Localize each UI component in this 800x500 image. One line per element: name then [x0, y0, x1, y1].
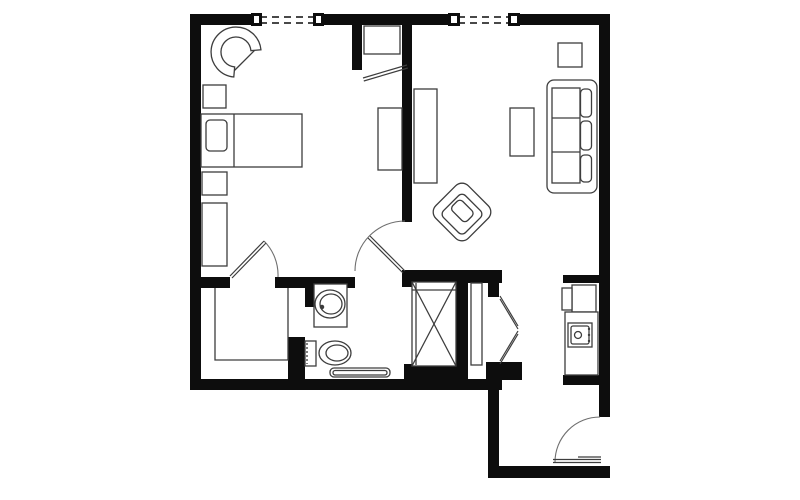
bathroom-sink	[314, 284, 347, 327]
fridge-body	[572, 285, 596, 312]
wall-shower-right	[456, 283, 468, 367]
sofa-back-cushion	[581, 121, 592, 150]
bath-mat-inner	[333, 371, 387, 376]
stove-knob	[588, 328, 590, 330]
wardrobe-door-leaf	[363, 65, 408, 81]
sofa-seat	[552, 88, 580, 183]
stove	[568, 323, 592, 347]
closet-shelving	[215, 288, 288, 360]
wall-bottom-left	[190, 379, 502, 390]
bed-pillow	[206, 120, 227, 151]
stove-inner	[571, 326, 589, 344]
sofa-back-cushion	[581, 155, 592, 182]
wall-bath-top	[402, 270, 502, 283]
tub-chair-seat-edge	[235, 51, 255, 71]
wall-right	[599, 14, 610, 417]
wall-corridor-left	[488, 379, 499, 471]
wall-left	[190, 14, 201, 390]
dresser	[202, 203, 227, 266]
wardrobe-shelf	[364, 26, 400, 54]
dresser	[378, 108, 402, 170]
tub-chair	[201, 17, 265, 81]
bifold-closet-doors	[500, 296, 518, 364]
wall-entry-bottom	[488, 466, 610, 478]
bed	[201, 114, 302, 167]
fridge-door	[562, 288, 572, 310]
nightstand	[203, 85, 226, 108]
wall-kitchen-stub-bottom	[563, 375, 599, 385]
toilet-seat	[326, 345, 348, 361]
wall-kitchen-stub-top	[563, 275, 599, 283]
stove-knob	[588, 340, 590, 342]
entry-door-leaf	[553, 457, 601, 463]
wall-hall-a	[190, 277, 230, 288]
refrigerator	[562, 285, 596, 312]
entry-door-arc	[555, 417, 600, 462]
bedroom-window	[251, 13, 324, 26]
hall-living-door-leaf	[368, 236, 405, 273]
media-console	[414, 89, 437, 183]
tub-chair-band	[201, 17, 265, 81]
sink-faucet	[320, 305, 323, 308]
coffee-table	[510, 108, 534, 156]
wall-divider	[402, 25, 412, 222]
living-room-window	[448, 13, 520, 26]
linen-shelf	[471, 283, 482, 365]
nightstand	[202, 172, 227, 195]
side-table	[558, 43, 582, 67]
wall-corridor-stub-top	[488, 283, 499, 297]
bath-mat	[330, 368, 390, 377]
walls	[190, 14, 610, 478]
roll-in-shower	[412, 282, 456, 366]
bedroom-closet-door-arc	[264, 241, 278, 277]
wall-closet-bottom-chunk	[486, 362, 522, 380]
wall-toilet-chunk	[288, 337, 305, 379]
stove-knob	[588, 334, 590, 336]
floor-plan-canvas	[0, 0, 800, 500]
bedroom-closet-door-leaf	[230, 241, 266, 278]
floor-plan-svg	[0, 0, 800, 500]
sofa-back-cushion	[581, 89, 592, 117]
accent-chair	[429, 179, 494, 244]
sink-basin-inner	[320, 294, 342, 314]
sofa	[547, 80, 597, 193]
wall-wardrobe-left	[352, 25, 362, 70]
toilet	[305, 341, 351, 366]
